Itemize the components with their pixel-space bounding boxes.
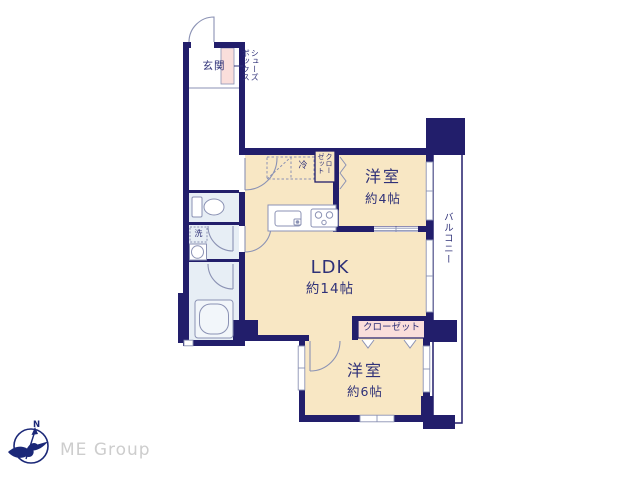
closet6-label: クローゼット (358, 323, 425, 334)
bathtub-icon (195, 300, 233, 338)
sink-icon (190, 244, 207, 260)
entrance-door-arc (189, 17, 214, 42)
room6-name: 洋室 (315, 362, 415, 380)
company-name: ME Group (60, 441, 151, 461)
room6-size: 約6帖 (315, 385, 415, 399)
stove-icon (311, 209, 338, 227)
kitchen-counter (268, 205, 338, 231)
compass-logo (8, 427, 48, 463)
balcony-strip (433, 152, 462, 423)
sliding-door (374, 227, 418, 232)
floorplan-page: 玄関 シューズ ボックス 洗 冷 クロー ゼット 洋室 約4帖 バルコニー LD… (0, 0, 640, 480)
room4-name: 洋室 (338, 168, 428, 186)
shoebox-label-line1: シューズ (250, 49, 259, 81)
shoebox-label-line2: ボックス (241, 49, 250, 81)
balcony-label: バルコニー (441, 212, 452, 265)
room4-size: 約4帖 (338, 192, 428, 206)
laundry-label: 洗 (191, 229, 206, 238)
ldk-closet-label-line1: クロー (325, 153, 333, 174)
floorplan-drawing (0, 0, 640, 480)
ldk-size: 約14帖 (280, 282, 380, 298)
refrigerator-label: 冷 (294, 161, 312, 171)
ldk-closet-label-line2: ゼット (317, 153, 325, 174)
genkan-label: 玄関 (192, 60, 236, 72)
north-label: N (33, 421, 40, 431)
ldk-name: LDK (280, 258, 380, 279)
